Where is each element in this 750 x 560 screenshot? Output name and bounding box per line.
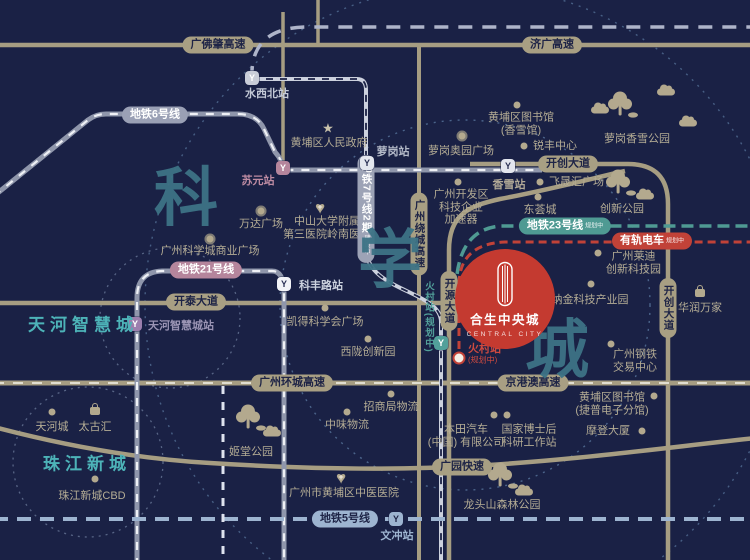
line-badge: 广园快速 [432, 459, 492, 476]
poi-label: 广州钢铁交易中心 [613, 349, 657, 374]
dot-icon [535, 194, 542, 201]
park-tree-icon [603, 89, 639, 130]
poi-label: 西陇创新园 [341, 346, 396, 359]
poi-label: 飞晟汇广场 [549, 176, 604, 189]
park-tree-icon [231, 402, 267, 443]
dot-icon [92, 476, 99, 483]
project-marker-central-city: 合生中央城 CENTRAL CITY [455, 249, 555, 349]
metro-station-icon [501, 159, 515, 173]
poi-label: 黄埔区图书馆(捷普电子分馆) [575, 392, 648, 417]
station-label: 天河智慧城站 [148, 317, 214, 333]
dot-icon [588, 281, 595, 288]
poi-label: 龙头山森林公园 [464, 499, 541, 512]
dot-icon [388, 391, 395, 398]
poi-label: 天河城 [36, 421, 69, 434]
line-badge: 地铁21号线 [170, 262, 242, 279]
dot-icon [49, 409, 56, 416]
poi-label: 萝岗香雪公园 [604, 133, 670, 146]
poi-label: 萝岗奥园广场 [428, 145, 494, 158]
station-label: 火村站(规划中) [421, 281, 435, 352]
station-label: 文冲站 [381, 527, 414, 543]
heart-icon: + [336, 470, 346, 487]
heart-icon: + [315, 200, 325, 217]
tram-station-sublabel: (规划中) [468, 355, 497, 366]
line-badge: 济广高速 [522, 37, 582, 54]
dot-icon [344, 409, 351, 416]
park-tree-icon [601, 167, 637, 203]
district-label: 天河智慧城 [28, 311, 138, 336]
tram-station-icon [453, 352, 466, 365]
dot-icon [537, 179, 544, 186]
poi-label: 黄埔区图书馆(香雪馆) [488, 112, 554, 137]
metro-station-icon [276, 161, 290, 175]
line-badge: 地铁6号线 [122, 107, 188, 124]
project-name-en: CENTRAL CITY [467, 331, 544, 338]
line-badge: 地铁5号线 [312, 511, 378, 528]
district-label: 珠江新城 [43, 450, 131, 475]
dot-icon [639, 428, 646, 435]
line-badge: 地铁23号线规划中 [519, 218, 611, 235]
cloud-icon [679, 120, 697, 127]
watermark-char: 科 [154, 147, 218, 239]
metro-station-icon [389, 512, 403, 526]
metro-station-icon [434, 336, 448, 350]
poi-label: 万达广场 [239, 218, 283, 231]
dot-icon [651, 393, 658, 400]
park-tree-icon [231, 402, 267, 438]
poi-label: 广州科学城商业广场 [161, 245, 260, 258]
bag-icon [695, 289, 705, 297]
ring-icon [256, 206, 267, 217]
dot-icon [491, 412, 498, 419]
dot-icon [365, 336, 372, 343]
tower-icon [494, 261, 516, 307]
star-icon [322, 122, 334, 135]
poi-label: 本田汽车(中国) 有限公司 [428, 424, 504, 449]
dot-icon [504, 412, 511, 419]
poi-label: 锐丰中心 [533, 140, 577, 153]
cloud-icon [636, 193, 654, 200]
poi-label: 华润万家 [678, 302, 722, 315]
ring-icon [457, 131, 468, 142]
poi-label: 广州开发区科技企业加速器 [434, 188, 489, 226]
poi-label: 创新公园 [600, 203, 644, 216]
poi-label: 凯得科学会广场 [287, 316, 364, 329]
poi-label: 中味物流 [325, 419, 369, 432]
poi-label: 招商局物流 [364, 401, 419, 414]
station-label: 萝岗站 [377, 143, 410, 159]
watermark-char: 学 [358, 209, 422, 301]
poi-label: 太古汇 [79, 421, 112, 434]
bag-icon [90, 407, 100, 415]
metro-station-icon [360, 156, 374, 170]
metro-station-icon [245, 71, 259, 85]
dot-icon [514, 102, 521, 109]
poi-label: 东荟城 [524, 204, 557, 217]
poi-label: 黄埔区人民政府 [291, 137, 368, 150]
line-badge: 有轨电车规划中 [612, 233, 692, 250]
map-labels-layer: 黄埔区人民政府黄埔区图书馆(香雪馆)萝岗奥园广场锐丰中心 萝岗香雪公园万达广场+… [0, 0, 750, 560]
line-badge: 开泰大道 [166, 294, 226, 311]
poi-label: 广州莱迪创新科技园 [606, 251, 661, 276]
station-label: 苏元站 [242, 172, 275, 188]
poi-label: 珠江新城CBD [58, 490, 125, 503]
dot-icon [608, 341, 615, 348]
station-label: 水西北站 [245, 85, 289, 101]
project-name-cn: 合生中央城 [470, 309, 540, 328]
metro-station-icon [277, 277, 291, 291]
poi-label: 广州市黄埔区中医医院 [289, 487, 399, 500]
dot-icon [455, 179, 462, 186]
line-badge: 开创大道 [538, 156, 598, 173]
park-tree-icon [601, 167, 637, 208]
poi-label: 姬堂公园 [229, 446, 273, 459]
dot-icon [595, 250, 602, 257]
line-badge: 广州环城高速 [251, 375, 333, 392]
station-label: 科丰路站 [299, 277, 343, 293]
project-location-map: 黄埔区人民政府黄埔区图书馆(香雪馆)萝岗奥园广场锐丰中心 萝岗香雪公园万达广场+… [0, 0, 750, 560]
station-label: 香雪站 [493, 176, 526, 192]
cloud-icon [657, 89, 675, 96]
poi-label: 摩登大厦 [586, 425, 630, 438]
poi-label: 国家博士后科研工作站 [502, 424, 557, 449]
park-tree-icon [603, 89, 639, 125]
line-badge: 广佛肇高速 [183, 37, 254, 54]
dot-icon [322, 305, 329, 312]
line-badge: 开创大道 [660, 278, 677, 338]
dot-icon [521, 143, 528, 150]
